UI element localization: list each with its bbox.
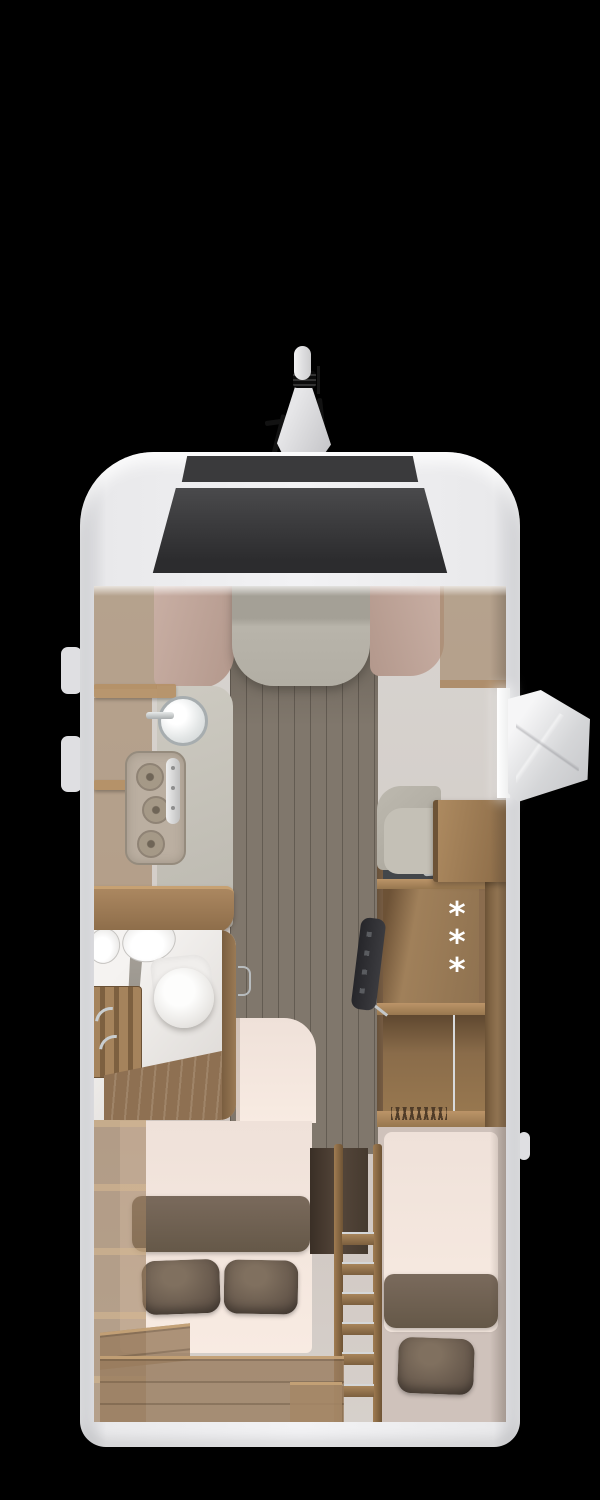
left-service-hatch [61, 647, 82, 694]
toilet-bowl [154, 968, 214, 1028]
ladder-step [342, 1292, 374, 1305]
left-bed-blanket [132, 1196, 310, 1252]
stove-controls [166, 758, 180, 824]
lower-cabinet [383, 1015, 485, 1111]
interior-area: * * * [94, 586, 506, 1422]
burner-icon [137, 830, 165, 858]
bed-step [290, 1382, 342, 1422]
ladder-step [342, 1322, 374, 1335]
ladder-step [342, 1262, 374, 1275]
ladder-step [342, 1232, 374, 1245]
pillow [397, 1337, 475, 1396]
snowflake-icon: * [448, 957, 465, 982]
ladder-step [342, 1384, 374, 1397]
fridge-tower: * * * [377, 855, 506, 1127]
bathroom-door-handle [238, 966, 251, 996]
antenna-cone-icon [277, 383, 337, 453]
right-bed-blanket [384, 1274, 498, 1328]
left-bed-head [236, 1018, 316, 1123]
bathroom-wall [222, 930, 236, 1120]
fridge-compartment: * * * [383, 889, 479, 1003]
ladder-step [342, 1352, 374, 1365]
pillow [141, 1259, 221, 1316]
antenna-mast-icon [294, 346, 311, 380]
cab-center-cushion [232, 586, 370, 686]
washbasin [94, 930, 124, 967]
windshield [140, 488, 460, 573]
pillow [224, 1259, 299, 1314]
cab-seat-left [154, 586, 234, 688]
bed-spring-strip [391, 1107, 447, 1120]
left-service-hatch [61, 736, 82, 792]
motorhome-floorplan-render: * * * [0, 0, 600, 1500]
kitchen-shelf [94, 684, 176, 698]
cab-seat-right [370, 586, 444, 676]
kitchen-faucet-icon [146, 712, 174, 719]
snowflake-icons: * * * [435, 901, 479, 991]
kitchen-sink [158, 696, 208, 746]
hanging-rod-icon [453, 1015, 455, 1111]
antenna-rod-icon [317, 366, 320, 394]
shower-bench [94, 986, 142, 1078]
cab-roof-window [150, 456, 450, 482]
bathroom [94, 930, 236, 1120]
vanity-counter [94, 886, 234, 933]
front-highlight [94, 586, 506, 596]
burner-icon [136, 763, 164, 791]
left-overhead-cabinet [94, 586, 157, 689]
